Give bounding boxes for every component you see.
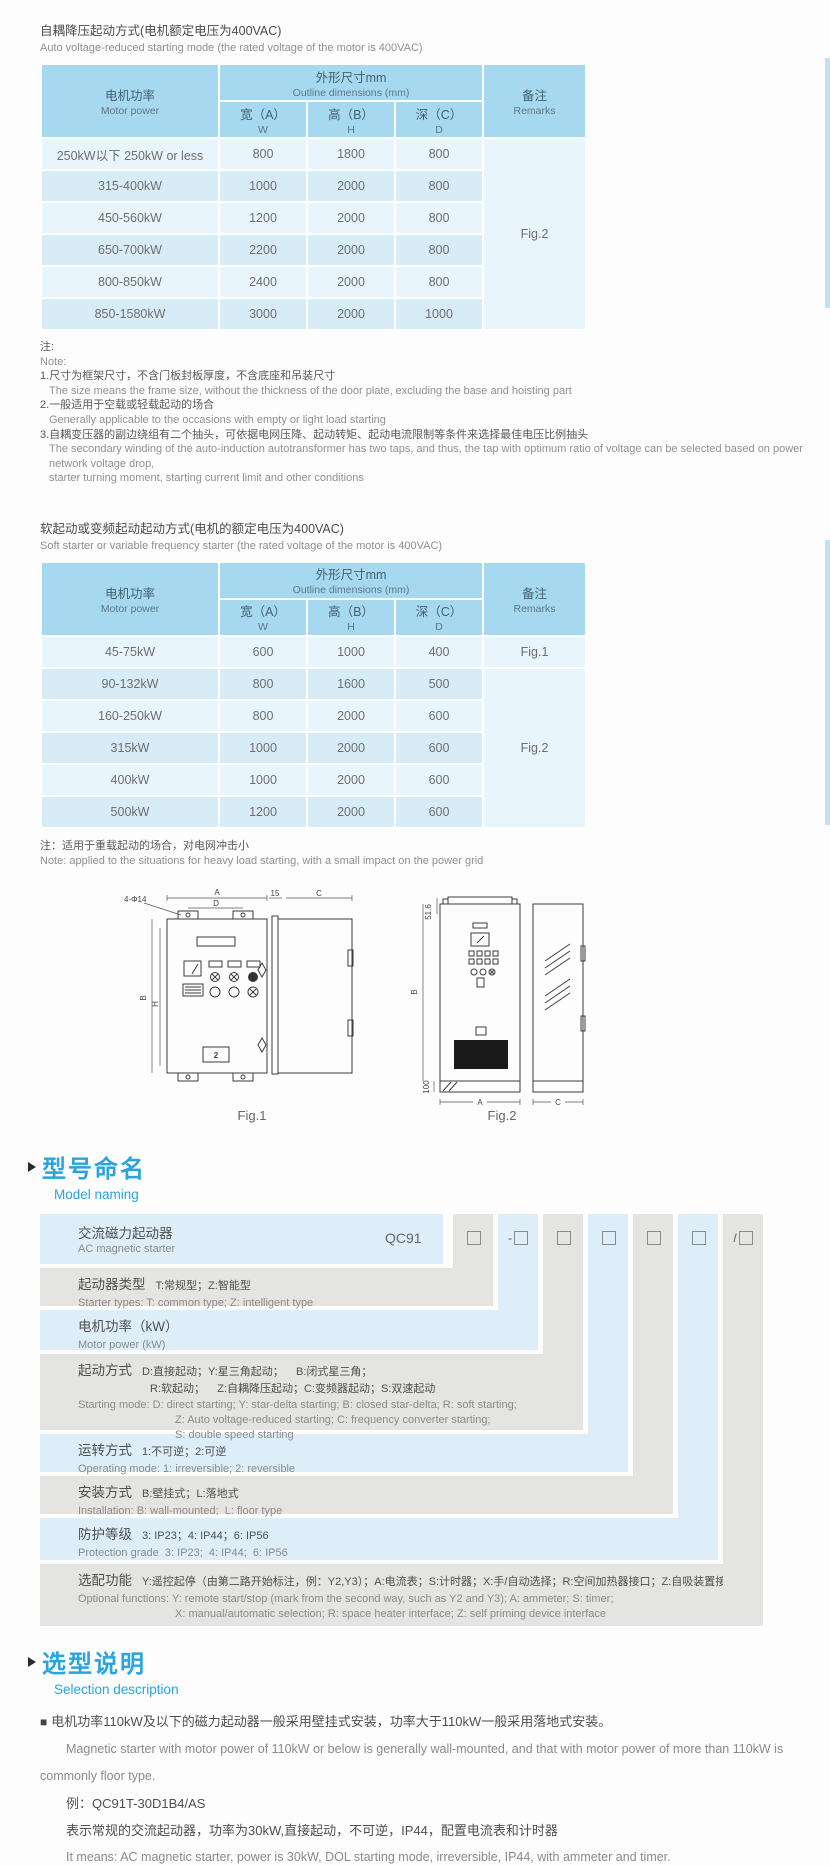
fig1-dim-b: B [139, 995, 148, 1000]
cell-w: 1200 [219, 202, 307, 234]
model-naming-base-row: 交流磁力起动器 AC magnetic starter QC91 [40, 1214, 443, 1264]
section-soft-starter: 软起动或变频起动起动方式(电机的额定电压为400VAC) Soft starte… [40, 518, 830, 868]
auto-dimensions-table: 电机功率 Motor power 外形尺寸mm Outline dimensio… [40, 63, 587, 331]
fig1-dim-a: A [214, 888, 220, 897]
row-cn: 3: IP23；4: IP44；6: IP56 [142, 1530, 269, 1542]
section-selection-description: 选型说明 Selection description ■电机功率110kW及以下… [40, 1644, 830, 1866]
code-box-square [557, 1231, 571, 1245]
box-prefix: - [508, 1231, 512, 1245]
cell-w: 1200 [219, 796, 307, 828]
cell-w: 800 [219, 138, 307, 170]
heading-cn: 选型说明 [42, 1644, 146, 1679]
row-en: Starter types: T: common type; Z: intell… [40, 1297, 493, 1309]
code-stripe-1 [453, 1214, 493, 1306]
row-label: 防护等级 [78, 1527, 132, 1542]
section-auto-voltage: 自耦降压起动方式(电机额定电压为400VAC) Auto voltage-red… [40, 20, 830, 486]
row-installation: 安装方式B:壁挂式；L:落地式 Installation: B: wall-mo… [40, 1476, 673, 1514]
cell-w: 1000 [219, 732, 307, 764]
header-width: 宽（A） W [219, 599, 307, 636]
selection-example-en: It means: AC magnetic starter, power is … [40, 1849, 830, 1866]
code-box-square [739, 1231, 753, 1245]
header-outline: 外形尺寸mm Outline dimensions (mm) [219, 562, 483, 599]
row-cn: Y:遥控起停（由第二路开始标注，例：Y2,Y3）；A:电流表；S:计时器；X:手… [142, 1576, 737, 1588]
cell-power: 400kW [41, 764, 219, 796]
product-name-cn: 交流磁力起动器 [40, 1214, 443, 1242]
model-naming-heading: 型号命名 [28, 1149, 830, 1184]
cell-h: 2000 [307, 796, 395, 828]
header-outline: 外形尺寸mm Outline dimensions (mm) [219, 64, 483, 101]
cell-d: 400 [395, 636, 483, 668]
cell-remark: Fig.1 [483, 636, 586, 668]
cell-d: 600 [395, 732, 483, 764]
cell-d: 800 [395, 202, 483, 234]
header-height-cn: 高（B） [308, 104, 394, 123]
cell-w: 1000 [219, 764, 307, 796]
header-width: 宽（A） W [219, 101, 307, 138]
fig1-panel-number: 2 [214, 1051, 219, 1060]
section-title-en: Auto voltage-reduced starting mode (the … [40, 42, 830, 54]
cell-h: 2000 [307, 170, 395, 202]
row-cn: 1:不可逆；2:可逆 [142, 1446, 226, 1458]
row-en: Optional functions: Y: remote start/stop… [40, 1593, 763, 1605]
table-row: 250kW以下 250kW or less 800 1800 800 Fig.2 [41, 138, 586, 170]
heading-cn: 型号命名 [42, 1149, 146, 1184]
header-remarks: 备注 Remarks [483, 562, 586, 636]
triangle-bullet-icon [28, 1657, 36, 1667]
cell-power: 450-560kW [41, 202, 219, 234]
cell-h: 1800 [307, 138, 395, 170]
fig2-drawing: 51.6 B 100 A [410, 897, 585, 1123]
selection-example-code: 例：QC91T-30D1B4/AS [40, 1795, 830, 1812]
note-line: Generally applicable to the occasions wi… [40, 413, 830, 428]
code-stripe-7 [723, 1214, 763, 1626]
cell-power: 90-132kW [41, 668, 219, 700]
outline-drawings: A D 4-Φ14 B H [40, 886, 830, 1131]
code-box-square [467, 1231, 481, 1245]
table-row: 90-132kW 800 1600 500 Fig.2 [41, 668, 586, 700]
row-cn: B:壁挂式；L:落地式 [142, 1488, 239, 1500]
header-width-cn: 宽（A） [220, 104, 306, 123]
code-box-square [692, 1231, 706, 1245]
row-label: 选配功能 [78, 1573, 132, 1588]
row-en: X: manual/automatic selection; R: space … [40, 1608, 763, 1620]
page-content: 自耦降压起动方式(电机额定电压为400VAC) Auto voltage-red… [0, 0, 830, 1866]
row-cn: T:常规型；Z:智能型 [156, 1280, 251, 1292]
selection-rule-en-1: Magnetic starter with motor power of 110… [40, 1741, 830, 1758]
cell-remark: Fig.2 [483, 138, 586, 330]
selection-rule-en-2: commonly floor type. [40, 1768, 830, 1785]
cell-power: 315-400kW [41, 170, 219, 202]
fig2-caption: Fig.2 [488, 1108, 517, 1123]
fig2-dim-top: 51.6 [424, 904, 433, 920]
cell-power: 500kW [41, 796, 219, 828]
model-naming-diagram: 交流磁力起动器 AC magnetic starter QC91 - / 起动器… [40, 1214, 790, 1626]
cell-w: 2200 [219, 234, 307, 266]
note-line: 注：适用于重载起动的场合，对电网冲击小 [40, 839, 830, 854]
row-starter-type: 起动器类型T:常规型；Z:智能型 Starter types: T: commo… [40, 1268, 493, 1306]
soft-table-notes: 注：适用于重载起动的场合，对电网冲击小 Note: applied to the… [40, 839, 830, 868]
heading-en: Model naming [54, 1187, 830, 1202]
code-stripe-6 [678, 1214, 718, 1560]
code-box-5 [633, 1231, 673, 1245]
header-motor-cn: 电机功率 [42, 583, 218, 602]
base-code: QC91 [385, 1230, 422, 1246]
cell-w: 3000 [219, 298, 307, 330]
note-line: The size means the frame size, without t… [40, 384, 830, 399]
cell-d: 600 [395, 700, 483, 732]
row-label: 起动方式 [78, 1363, 132, 1378]
header-height: 高（B） H [307, 101, 395, 138]
cell-power: 650-700kW [41, 234, 219, 266]
cell-h: 2000 [307, 298, 395, 330]
section-title-cn: 软起动或变频起动起动方式(电机的额定电压为400VAC) [40, 518, 830, 537]
cell-h: 2000 [307, 202, 395, 234]
fig1-dim-h: H [151, 1001, 160, 1007]
header-depth-cn: 深（C） [396, 601, 482, 620]
row-en: Z: Auto voltage-reduced starting; C: fre… [40, 1414, 583, 1426]
note-line: 1.尺寸为框架尺寸，不含门板封板厚度，不含底座和吊装尺寸 [40, 369, 830, 384]
header-outline-cn: 外形尺寸mm [220, 67, 482, 86]
fig1-drawing: A D 4-Φ14 B H [124, 888, 353, 1123]
cell-h: 1000 [307, 636, 395, 668]
cell-d: 600 [395, 796, 483, 828]
row-motor-power: 电机功率（kW） Motor power (kW) [40, 1310, 538, 1350]
row-label: 起动器类型 [78, 1277, 146, 1292]
code-box-square [602, 1231, 616, 1245]
cell-d: 600 [395, 764, 483, 796]
row-label: 安装方式 [78, 1485, 132, 1500]
heading-en: Selection description [54, 1682, 830, 1697]
fig1-caption: Fig.1 [238, 1108, 267, 1123]
fig1-dim-d: D [213, 899, 219, 908]
note-line: 2.一般适用于空载或轻载起动的场合 [40, 398, 830, 413]
selection-rule-cn: ■电机功率110kW及以下的磁力起动器一般采用壁挂式安装，功率大于110kW一般… [40, 1713, 830, 1731]
header-motor-power: 电机功率 Motor power [41, 562, 219, 636]
code-box-3 [543, 1231, 583, 1245]
note-line: Note: [40, 355, 830, 370]
row-en: Protection grade 3: IP23; 4: IP44; 6: IP… [40, 1547, 718, 1559]
header-width-en: W [220, 621, 306, 633]
cell-d: 500 [395, 668, 483, 700]
cell-power: 315kW [41, 732, 219, 764]
code-box-square [514, 1231, 528, 1245]
row-en: Operating mode: 1: irreversible; 2: reve… [40, 1463, 628, 1475]
fig2-dim-c: C [555, 1098, 561, 1107]
code-box-7: / [723, 1231, 763, 1245]
code-box-4 [588, 1231, 628, 1245]
product-name-en: AC magnetic starter [40, 1242, 443, 1255]
header-motor-cn: 电机功率 [42, 85, 218, 104]
cell-power: 160-250kW [41, 700, 219, 732]
note-line: 注: [40, 340, 830, 355]
note-line: The secondary winding of the auto-induct… [40, 442, 830, 471]
header-motor-en: Motor power [42, 603, 218, 615]
figures-svg: A D 4-Φ14 B H [40, 886, 790, 1126]
header-height-en: H [308, 621, 394, 633]
row-optional-functions: 选配功能Y:遥控起停（由第二路开始标注，例：Y2,Y3）；A:电流表；S:计时器… [40, 1564, 763, 1626]
cell-power: 850-1580kW [41, 298, 219, 330]
cell-h: 2000 [307, 234, 395, 266]
cell-power: 250kW以下 250kW or less [41, 138, 219, 170]
header-outline-en: Outline dimensions (mm) [220, 87, 482, 99]
cell-d: 800 [395, 170, 483, 202]
header-remarks-cn: 备注 [484, 85, 585, 104]
cell-d: 800 [395, 266, 483, 298]
cell-remark: Fig.2 [483, 668, 586, 828]
cell-w: 800 [219, 668, 307, 700]
section-title-en: Soft starter or variable frequency start… [40, 540, 830, 552]
fig2-dim-a: A [477, 1098, 483, 1107]
note-line: Note: applied to the situations for heav… [40, 854, 830, 869]
selection-rule-text: 电机功率110kW及以下的磁力起动器一般采用壁挂式安装，功率大于110kW一般采… [51, 1714, 611, 1729]
square-bullet-icon: ■ [40, 1715, 47, 1729]
note-line: starter turning moment, starting current… [40, 471, 830, 486]
cell-w: 800 [219, 700, 307, 732]
header-depth: 深（C） D [395, 101, 483, 138]
section-model-naming: 型号命名 Model naming 交流磁力起动器 AC magnetic st… [40, 1149, 830, 1626]
cell-d: 1000 [395, 298, 483, 330]
cell-w: 1000 [219, 170, 307, 202]
cell-d: 800 [395, 138, 483, 170]
code-box-square [647, 1231, 661, 1245]
row-cn: D:直接起动；Y:星三角起动； B:闭式星三角； [142, 1366, 372, 1378]
soft-dimensions-table: 电机功率 Motor power 外形尺寸mm Outline dimensio… [40, 561, 587, 829]
cell-w: 2400 [219, 266, 307, 298]
row-label: 运转方式 [78, 1443, 132, 1458]
header-height: 高（B） H [307, 599, 395, 636]
cell-w: 600 [219, 636, 307, 668]
note-line: 3.自耦变压器的副边绕组有二个抽头，可依据电网压降、起动转矩、起动电流限制等条件… [40, 428, 830, 443]
code-box-6 [678, 1231, 718, 1245]
table-row: 45-75kW 600 1000 400 Fig.1 [41, 636, 586, 668]
cell-power: 800-850kW [41, 266, 219, 298]
row-starting-mode: 起动方式D:直接起动；Y:星三角起动； B:闭式星三角； R:软起动； Z:自耦… [40, 1354, 583, 1430]
code-stripe-5 [633, 1214, 673, 1514]
box-prefix: / [733, 1231, 736, 1245]
header-outline-en: Outline dimensions (mm) [220, 584, 482, 596]
fig1-dim-c: C [316, 889, 322, 898]
fig2-dim-base: 100 [422, 1080, 431, 1094]
code-stripe-3 [543, 1214, 583, 1430]
cell-h: 1600 [307, 668, 395, 700]
header-motor-en: Motor power [42, 105, 218, 117]
header-remarks-en: Remarks [484, 603, 585, 615]
header-height-en: H [308, 124, 394, 136]
cell-h: 2000 [307, 700, 395, 732]
code-stripe-4 [588, 1214, 628, 1472]
cell-d: 800 [395, 234, 483, 266]
header-depth-en: D [396, 621, 482, 633]
row-cn2: R:软起动； Z:自耦降压起动；C:变频器起动；S:双速起动 [40, 1380, 583, 1396]
header-depth: 深（C） D [395, 599, 483, 636]
triangle-bullet-icon [28, 1162, 36, 1172]
catalog-page: { "table_header": { "motor_cn": "电机功率", … [0, 0, 830, 1797]
row-en: Starting mode: D: direct starting; Y: st… [40, 1399, 583, 1411]
section-title-cn: 自耦降压起动方式(电机额定电压为400VAC) [40, 20, 830, 39]
row-label: 电机功率（kW） [78, 1319, 179, 1334]
auto-table-notes: 注: Note: 1.尺寸为框架尺寸，不含门板封板厚度，不含底座和吊装尺寸 Th… [40, 340, 830, 486]
header-remarks: 备注 Remarks [483, 64, 586, 138]
code-box-1 [453, 1231, 493, 1245]
header-width-en: W [220, 124, 306, 136]
cell-h: 2000 [307, 732, 395, 764]
row-operating-mode: 运转方式1:不可逆；2:可逆 Operating mode: 1: irreve… [40, 1434, 628, 1472]
fig1-dim-15: 15 [271, 889, 280, 898]
fig2-dim-b: B [410, 989, 419, 994]
cell-h: 2000 [307, 266, 395, 298]
code-box-2: - [498, 1231, 538, 1245]
selection-example-cn: 表示常规的交流起动器，功率为30kW,直接起动，不可逆，IP44，配置电流表和计… [40, 1822, 830, 1839]
selection-heading: 选型说明 [28, 1644, 830, 1679]
cell-h: 2000 [307, 764, 395, 796]
header-outline-cn: 外形尺寸mm [220, 564, 482, 583]
page-edge-strip-top [825, 58, 830, 308]
cell-power: 45-75kW [41, 636, 219, 668]
page-edge-strip-bottom [825, 540, 830, 825]
row-protection-grade: 防护等级3: IP23；4: IP44；6: IP56 Protection g… [40, 1518, 718, 1560]
header-remarks-en: Remarks [484, 105, 585, 117]
header-remarks-cn: 备注 [484, 583, 585, 602]
row-en: Motor power (kW) [40, 1339, 538, 1351]
header-width-cn: 宽（A） [220, 601, 306, 620]
header-depth-cn: 深（C） [396, 104, 482, 123]
fig1-holes-label: 4-Φ14 [124, 895, 147, 904]
row-en: Installation: B: wall-mounted; L: floor … [40, 1505, 673, 1517]
header-motor-power: 电机功率 Motor power [41, 64, 219, 138]
header-height-cn: 高（B） [308, 601, 394, 620]
header-depth-en: D [396, 124, 482, 136]
